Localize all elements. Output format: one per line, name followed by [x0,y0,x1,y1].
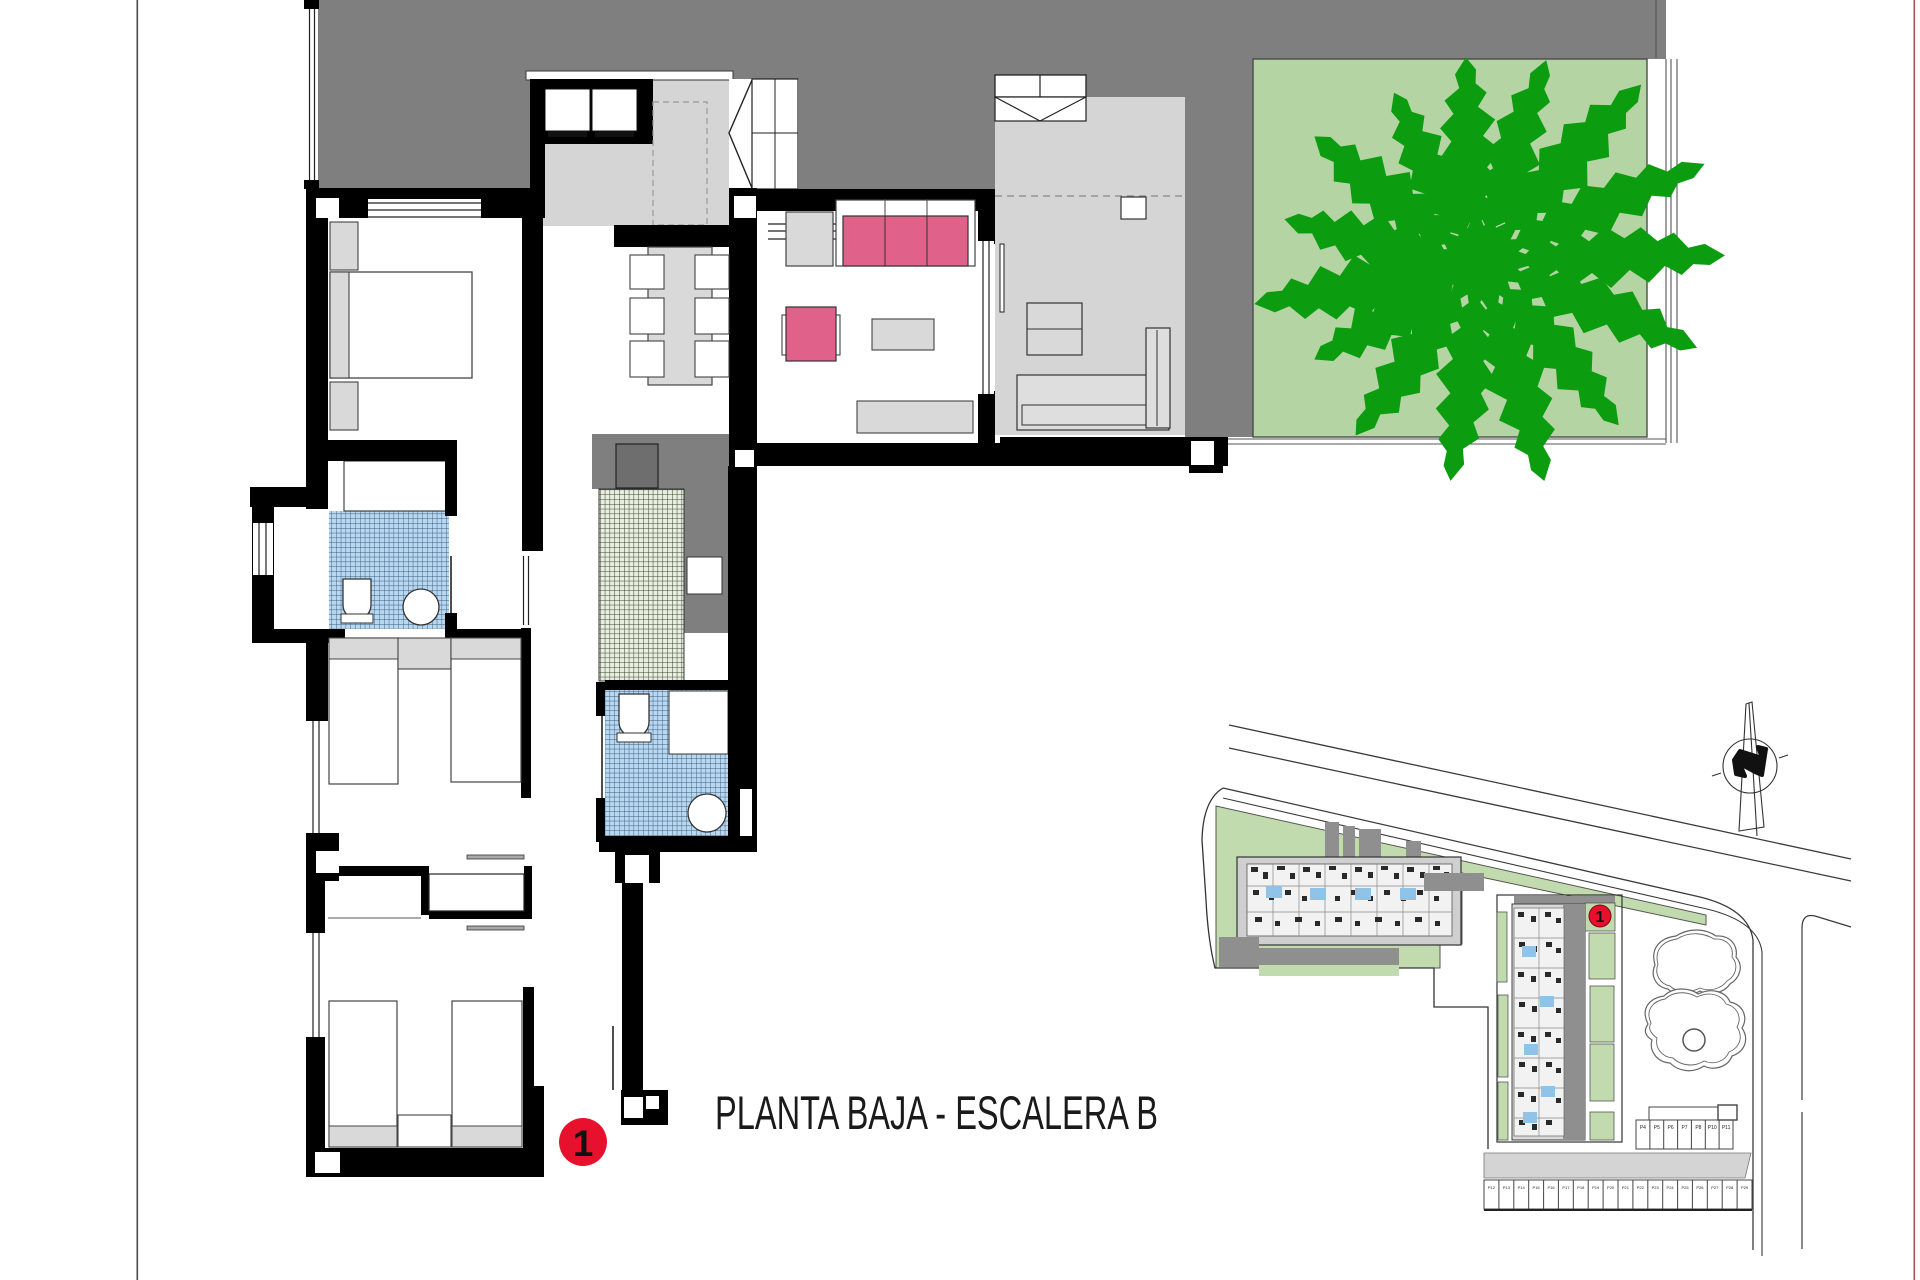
svg-text:P16: P16 [1547,1185,1555,1190]
svg-text:P21: P21 [1622,1185,1630,1190]
svg-text:P23: P23 [1652,1185,1660,1190]
svg-text:P12: P12 [1488,1185,1496,1190]
svg-text:P19: P19 [1592,1185,1600,1190]
svg-text:P13: P13 [1503,1185,1511,1190]
svg-text:P22: P22 [1637,1185,1645,1190]
svg-text:P20: P20 [1607,1185,1615,1190]
svg-text:P15: P15 [1533,1185,1541,1190]
svg-text:P5: P5 [1654,1125,1660,1131]
svg-text:P18: P18 [1577,1185,1585,1190]
svg-text:P26: P26 [1696,1185,1704,1190]
svg-text:P24: P24 [1667,1185,1675,1190]
svg-text:P8: P8 [1695,1125,1701,1131]
svg-text:1: 1 [1596,909,1605,926]
svg-text:1: 1 [573,1123,594,1164]
svg-text:P25: P25 [1681,1185,1689,1190]
svg-text:PLANTA BAJA - ESCALERA B: PLANTA BAJA - ESCALERA B [715,1086,1158,1139]
svg-text:P6: P6 [1668,1125,1674,1131]
svg-text:P29: P29 [1741,1185,1749,1190]
svg-text:P17: P17 [1562,1185,1570,1190]
svg-text:P10: P10 [1708,1125,1717,1131]
svg-text:P27: P27 [1711,1185,1719,1190]
svg-text:P14: P14 [1518,1185,1526,1190]
svg-text:P11: P11 [1722,1125,1731,1131]
svg-text:P28: P28 [1726,1185,1734,1190]
svg-text:P4: P4 [1640,1125,1646,1131]
svg-text:P7: P7 [1681,1125,1687,1131]
